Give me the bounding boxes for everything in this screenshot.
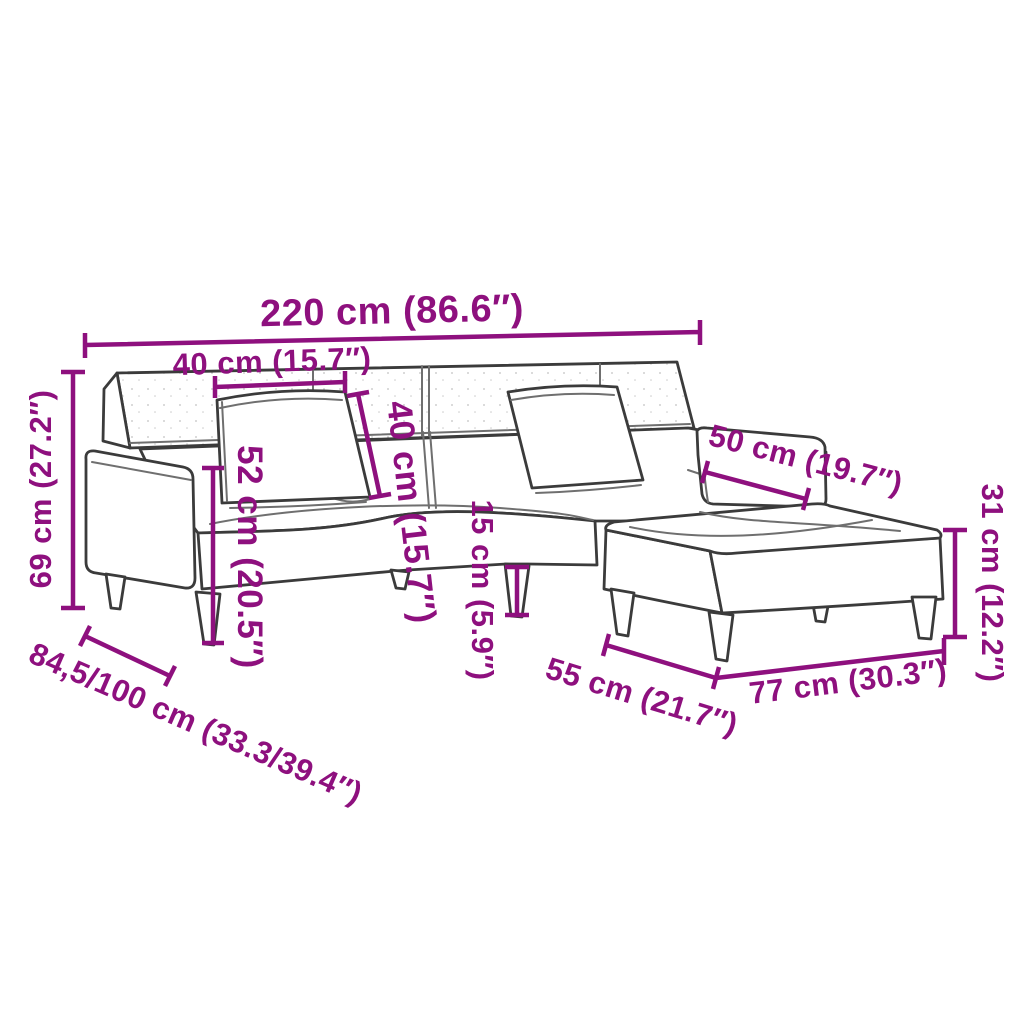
dimension-diagram: 220 cm (86.6″) 40 cm (15.7″) 40 cm (15.7… <box>0 0 1024 1024</box>
dim-seat-height-label: 52 cm (20.5″) <box>230 445 269 669</box>
dim-sofa-depth-label: 84,5/100 cm (33.3/39.4″) <box>24 636 368 811</box>
dim-footstool-depth: 55 cm (21.7″) <box>542 634 742 742</box>
dim-sofa-depth: 84,5/100 cm (33.3/39.4″) <box>24 626 368 811</box>
dim-leg-height-label: 15 cm (5.9″) <box>465 499 500 680</box>
dim-seat-height: 52 cm (20.5″) <box>202 445 269 669</box>
dim-footstool-height-label: 31 cm (12.2″) <box>975 484 1010 683</box>
dim-backrest-height: 69 cm (27.2″) <box>23 372 85 608</box>
dim-cushion-width-label: 40 cm (15.7″) <box>172 340 372 382</box>
dim-footstool-width: 77 cm (30.3″) <box>716 638 949 711</box>
dim-backrest-height-label: 69 cm (27.2″) <box>23 390 58 589</box>
armrest-left <box>86 451 195 588</box>
sofa-dimension-drawing: 220 cm (86.6″) 40 cm (15.7″) 40 cm (15.7… <box>0 0 1024 1024</box>
dim-backrest-height-line <box>61 372 85 608</box>
footstool-leg <box>912 597 936 639</box>
sofa-leg <box>196 592 220 645</box>
dim-sofa-width-label: 220 cm (86.6″) <box>260 287 525 335</box>
footstool-leg <box>709 612 733 661</box>
sofa-leg <box>106 574 125 609</box>
dim-footstool-depth-label: 55 cm (21.7″) <box>542 651 742 743</box>
footstool <box>604 504 943 661</box>
footstool-leg <box>611 589 634 636</box>
dim-footstool-height-line <box>943 530 967 637</box>
dim-footstool-height: 31 cm (12.2″) <box>943 484 1010 683</box>
